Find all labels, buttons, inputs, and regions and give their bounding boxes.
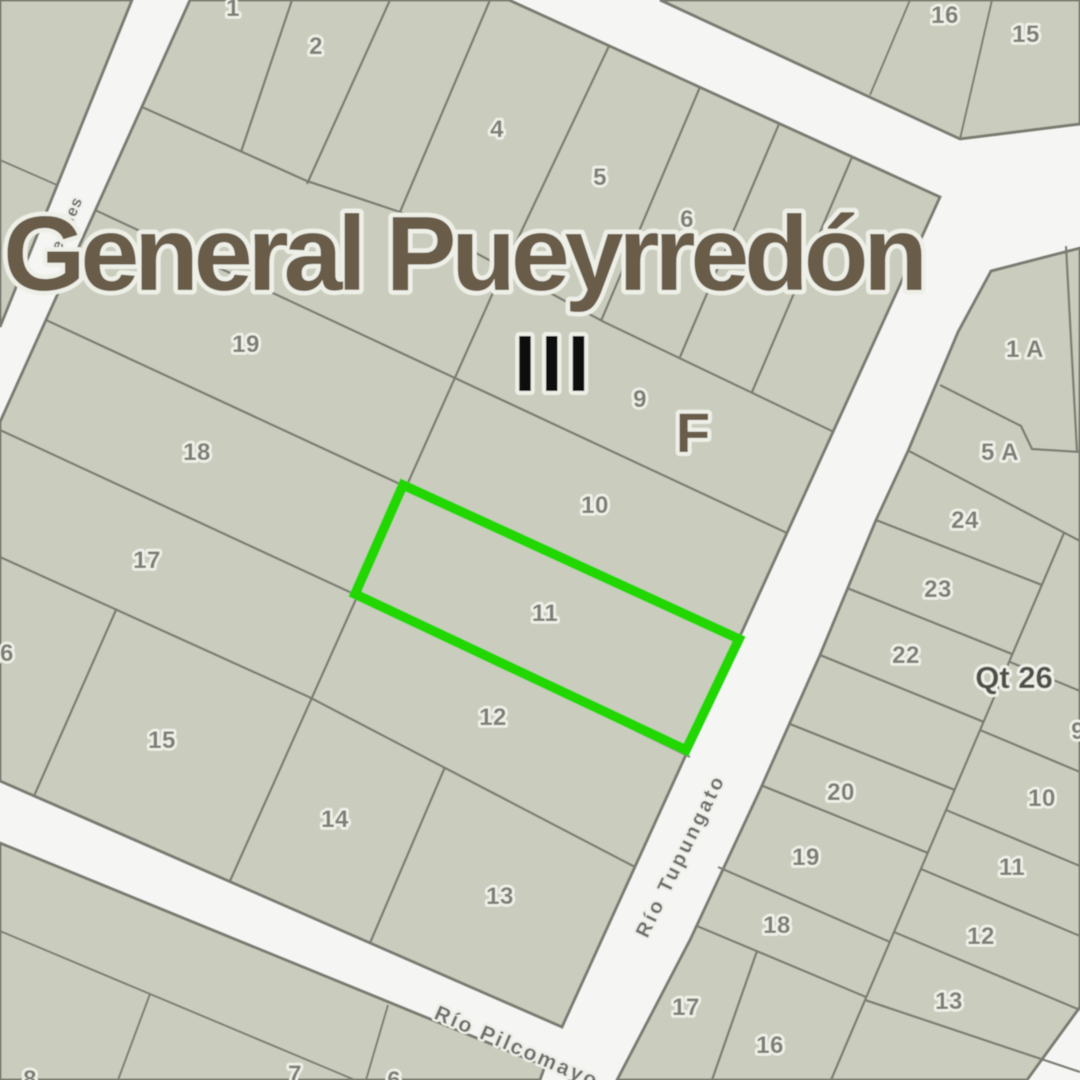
svg-text:20: 20: [827, 779, 855, 806]
svg-text:18: 18: [763, 912, 791, 939]
svg-text:18: 18: [183, 439, 211, 466]
svg-text:24: 24: [951, 507, 979, 534]
svg-text:2: 2: [309, 33, 323, 60]
svg-text:16: 16: [756, 1032, 784, 1059]
svg-text:19: 19: [232, 331, 260, 358]
svg-text:General Pueyrredón: General Pueyrredón: [3, 195, 923, 313]
svg-text:5 A: 5 A: [981, 439, 1019, 466]
svg-text:22: 22: [892, 642, 920, 669]
svg-text:15: 15: [1012, 21, 1040, 48]
svg-text:15: 15: [148, 727, 176, 754]
svg-text:5: 5: [593, 164, 607, 191]
svg-text:19: 19: [792, 844, 820, 871]
svg-text:F: F: [676, 401, 710, 464]
svg-text:11: 11: [999, 854, 1025, 881]
svg-text:12: 12: [967, 923, 995, 950]
svg-text:10: 10: [1028, 785, 1056, 812]
svg-text:1: 1: [226, 0, 240, 22]
svg-text:13: 13: [935, 988, 963, 1015]
svg-text:10: 10: [581, 492, 609, 519]
svg-text:8: 8: [23, 1066, 37, 1080]
svg-text:13: 13: [486, 883, 514, 910]
svg-text:14: 14: [321, 806, 349, 833]
svg-text:9: 9: [633, 386, 647, 413]
svg-text:17: 17: [672, 994, 700, 1021]
svg-text:1 A: 1 A: [1006, 336, 1044, 363]
svg-text:16: 16: [931, 2, 959, 29]
svg-text:Qt 26: Qt 26: [975, 660, 1053, 695]
svg-text:III: III: [514, 319, 594, 408]
svg-text:17: 17: [133, 547, 161, 574]
svg-text:4: 4: [490, 116, 504, 143]
svg-text:11: 11: [532, 600, 558, 627]
svg-text:6: 6: [387, 1067, 401, 1080]
svg-text:16: 16: [0, 640, 14, 667]
svg-text:9: 9: [1071, 718, 1080, 745]
svg-text:12: 12: [479, 704, 507, 731]
svg-text:23: 23: [924, 576, 952, 603]
svg-text:7: 7: [288, 1061, 302, 1080]
